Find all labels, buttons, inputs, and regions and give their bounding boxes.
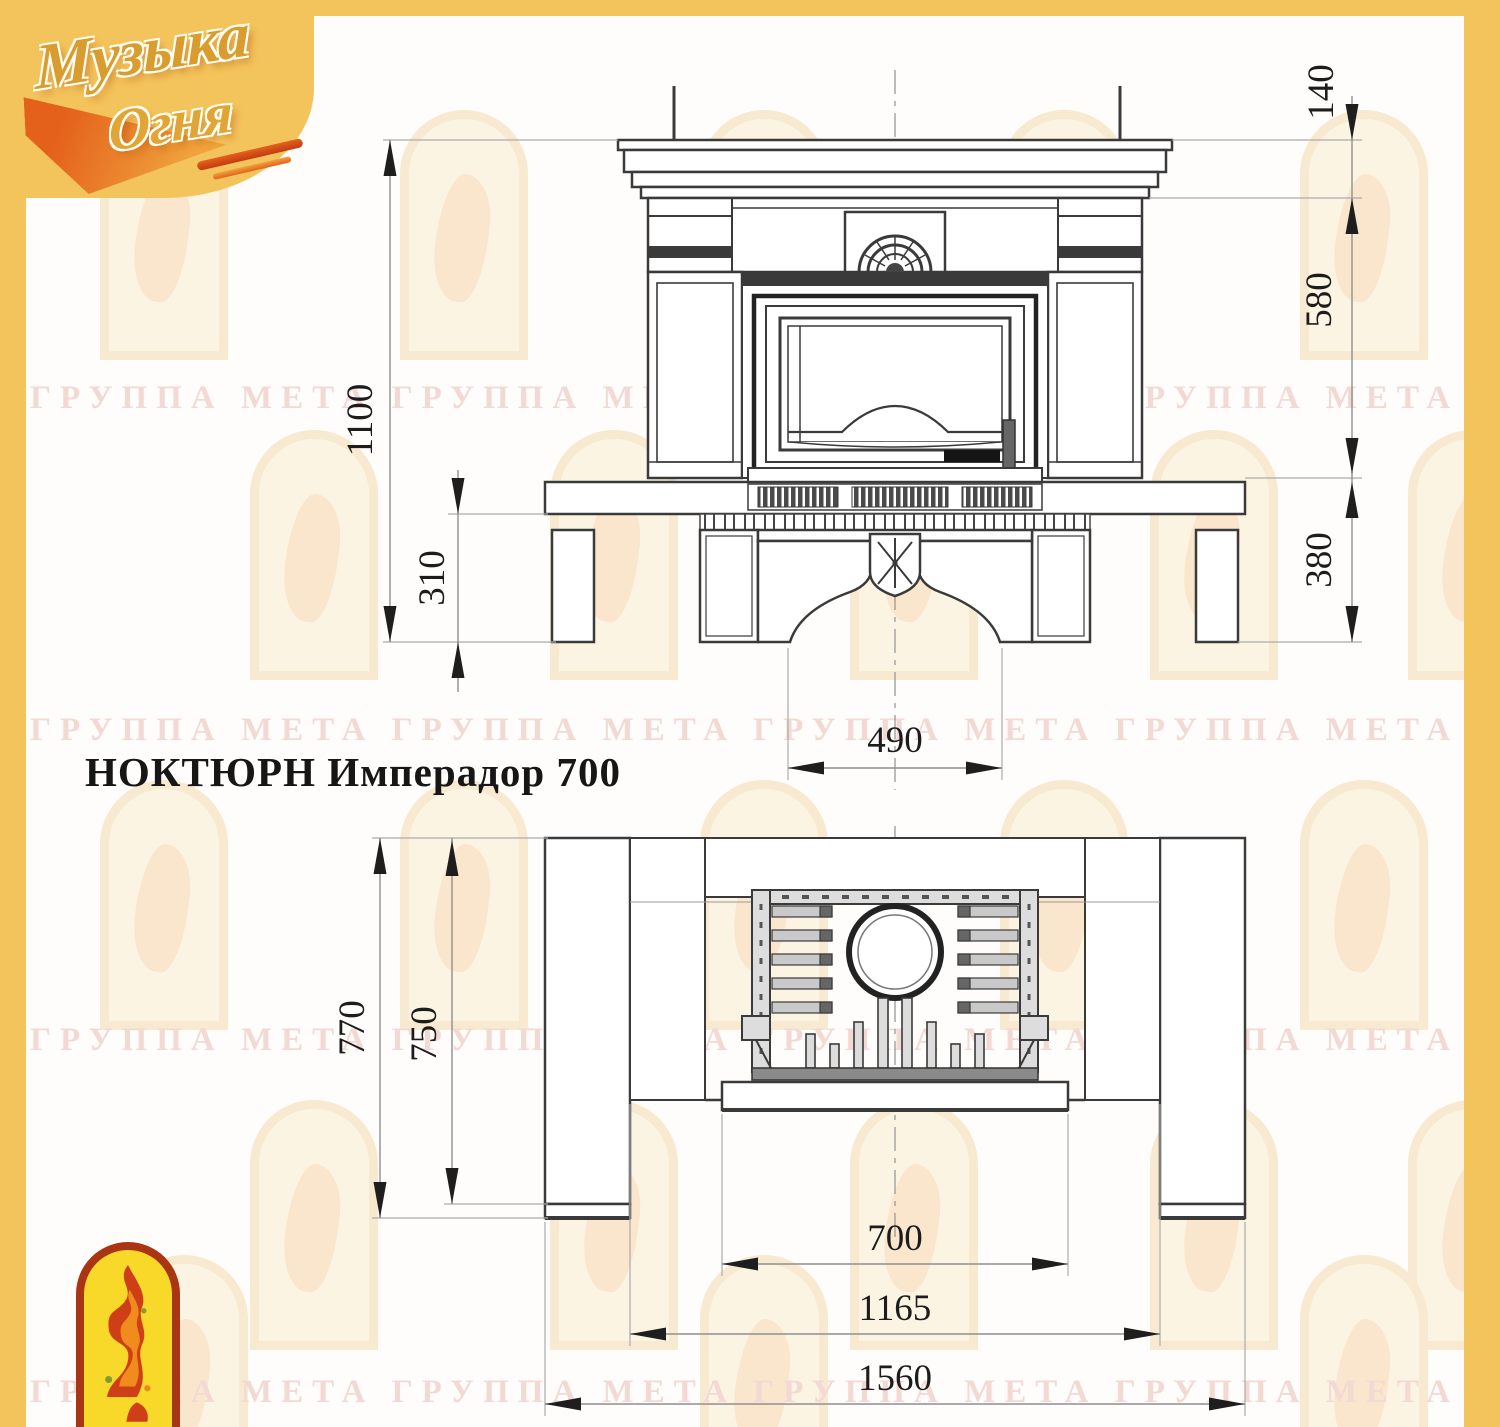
page-border-right — [1464, 0, 1500, 1427]
firebox-door — [742, 285, 1048, 482]
dim-mantel-height: 140 — [1301, 64, 1342, 120]
flame-badge-icon — [76, 1242, 180, 1427]
dim-depth-inner: 750 — [404, 1006, 445, 1062]
dim-body-width: 1165 — [859, 1288, 932, 1329]
plan-view — [545, 826, 1245, 1240]
dim-firebox-width: 700 — [867, 1218, 923, 1259]
dim-opening-width: 490 — [867, 720, 923, 761]
page: ГРУППА МЕТА ГРУППА МЕТА ГРУППА МЕТА ГРУП… — [0, 0, 1500, 1427]
front-slab — [705, 1082, 1085, 1110]
dim-total-height: 1100 — [340, 384, 381, 457]
mantel-shelf — [618, 140, 1172, 198]
grate-strip — [748, 484, 1042, 510]
dim-width-total: 1560 — [858, 1358, 932, 1399]
baluster-row — [700, 514, 1090, 530]
dim-body-height: 580 — [1299, 272, 1340, 328]
right-leg — [1048, 272, 1142, 478]
flue-collar-icon — [849, 906, 941, 998]
central-pedestal — [758, 530, 1032, 642]
technical-drawing: 1100 310 140 580 380 490 770 750 700 116… — [0, 0, 1500, 1427]
front-elevation-view — [545, 70, 1245, 790]
page-title: НОКТЮРН Имперадор 700 — [85, 748, 621, 796]
dim-hearth-height: 380 — [1299, 532, 1340, 588]
dim-depth-total: 770 — [332, 1000, 373, 1056]
fan-ornament-icon — [845, 212, 945, 272]
left-leg — [648, 272, 742, 478]
page-border-left — [0, 0, 26, 1427]
lintel-band — [734, 274, 1056, 285]
door-handle — [1003, 420, 1015, 468]
logo-word-2: Огня — [108, 78, 233, 165]
dim-plinth-height: 310 — [412, 550, 453, 606]
